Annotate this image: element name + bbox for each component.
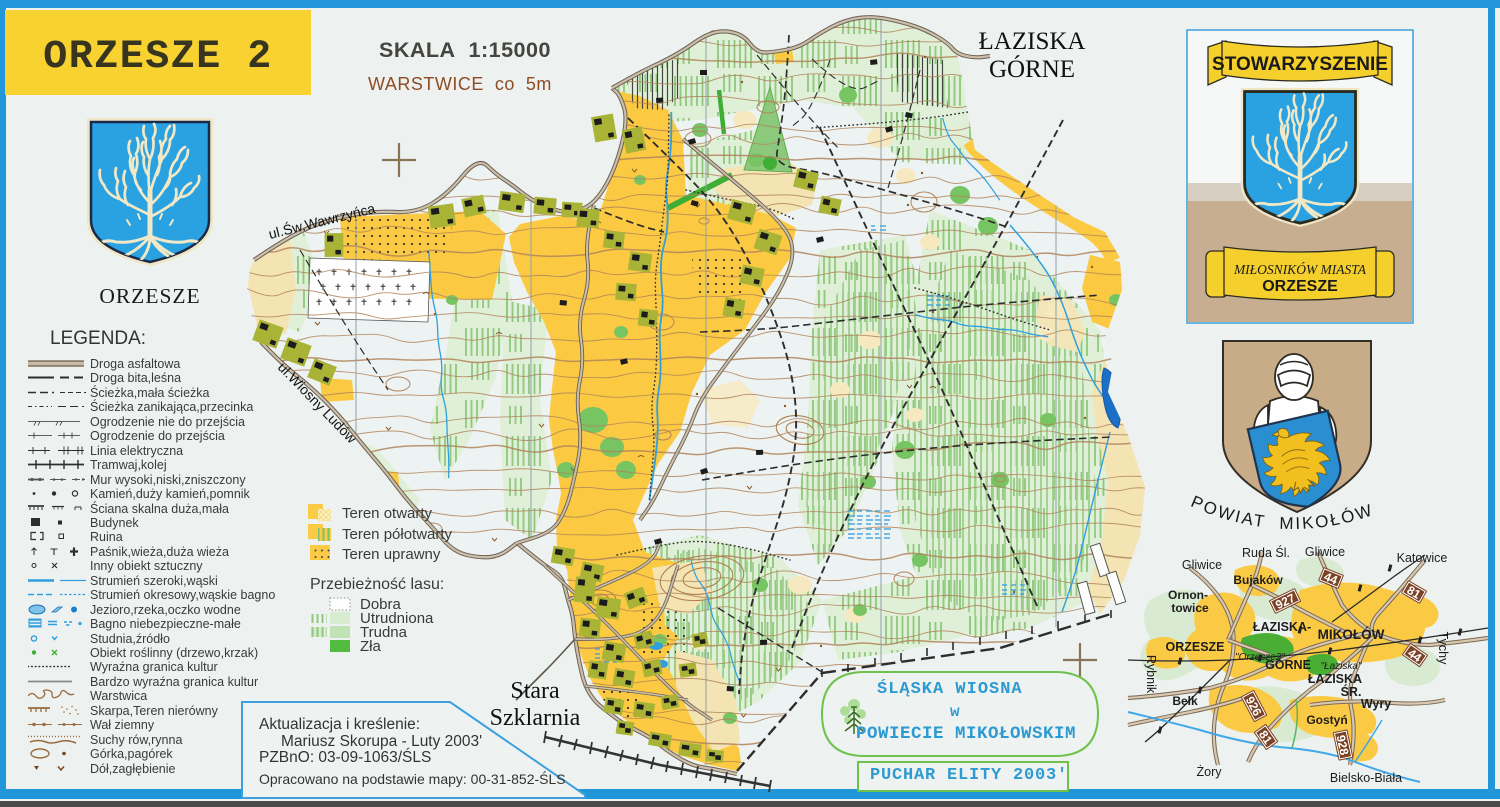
svg-text:Gostyń: Gostyń xyxy=(1306,713,1347,727)
svg-text:Bełk: Bełk xyxy=(1172,694,1198,708)
svg-text:"Łaziska": "Łaziska" xyxy=(1320,661,1361,672)
svg-text:ORZESZE: ORZESZE xyxy=(1262,278,1338,295)
svg-text:towice: towice xyxy=(1171,601,1209,615)
svg-text:ŁAZISKA-: ŁAZISKA- xyxy=(1253,620,1311,634)
svg-text:MIŁOSNIKÓW MIASTA: MIŁOSNIKÓW MIASTA xyxy=(1233,262,1367,277)
svg-text:Teren półotwarty: Teren półotwarty xyxy=(342,526,453,543)
svg-text:Bujaków: Bujaków xyxy=(1233,573,1283,587)
svg-text:928: 928 xyxy=(1334,734,1352,757)
svg-text:Gliwice: Gliwice xyxy=(1305,545,1345,559)
svg-text:STOWARZYSZENIE: STOWARZYSZENIE xyxy=(1212,54,1388,75)
svg-text:Tychy: Tychy xyxy=(1436,632,1450,665)
svg-text:Katowice: Katowice xyxy=(1397,551,1448,565)
svg-text:Teren uprawny: Teren uprawny xyxy=(342,546,441,563)
svg-text:Rybnik: Rybnik xyxy=(1144,655,1158,694)
svg-text:Wyry: Wyry xyxy=(1361,697,1391,711)
svg-text:ŁAZISKA: ŁAZISKA xyxy=(1308,672,1362,686)
svg-text:POWIAT MIKOŁÓW: POWIAT MIKOŁÓW xyxy=(1188,492,1376,533)
svg-text:ŚR.: ŚR. xyxy=(1341,684,1362,699)
svg-text:Ornon-: Ornon- xyxy=(1168,588,1208,602)
svg-text:Teren otwarty: Teren otwarty xyxy=(342,505,433,522)
svg-text:ORZESZE: ORZESZE xyxy=(1165,640,1224,654)
svg-text:Zła: Zła xyxy=(360,638,381,655)
svg-text:Bielsko-Biała: Bielsko-Biała xyxy=(1330,771,1402,785)
svg-text:Ruda Śl.: Ruda Śl. xyxy=(1242,545,1290,560)
svg-text:MIKOŁÓW: MIKOŁÓW xyxy=(1318,627,1385,642)
svg-text:Żory: Żory xyxy=(1197,765,1223,779)
svg-text:Gliwice: Gliwice xyxy=(1182,558,1222,572)
svg-text:"Orzesze2": "Orzesze2" xyxy=(1235,652,1285,663)
